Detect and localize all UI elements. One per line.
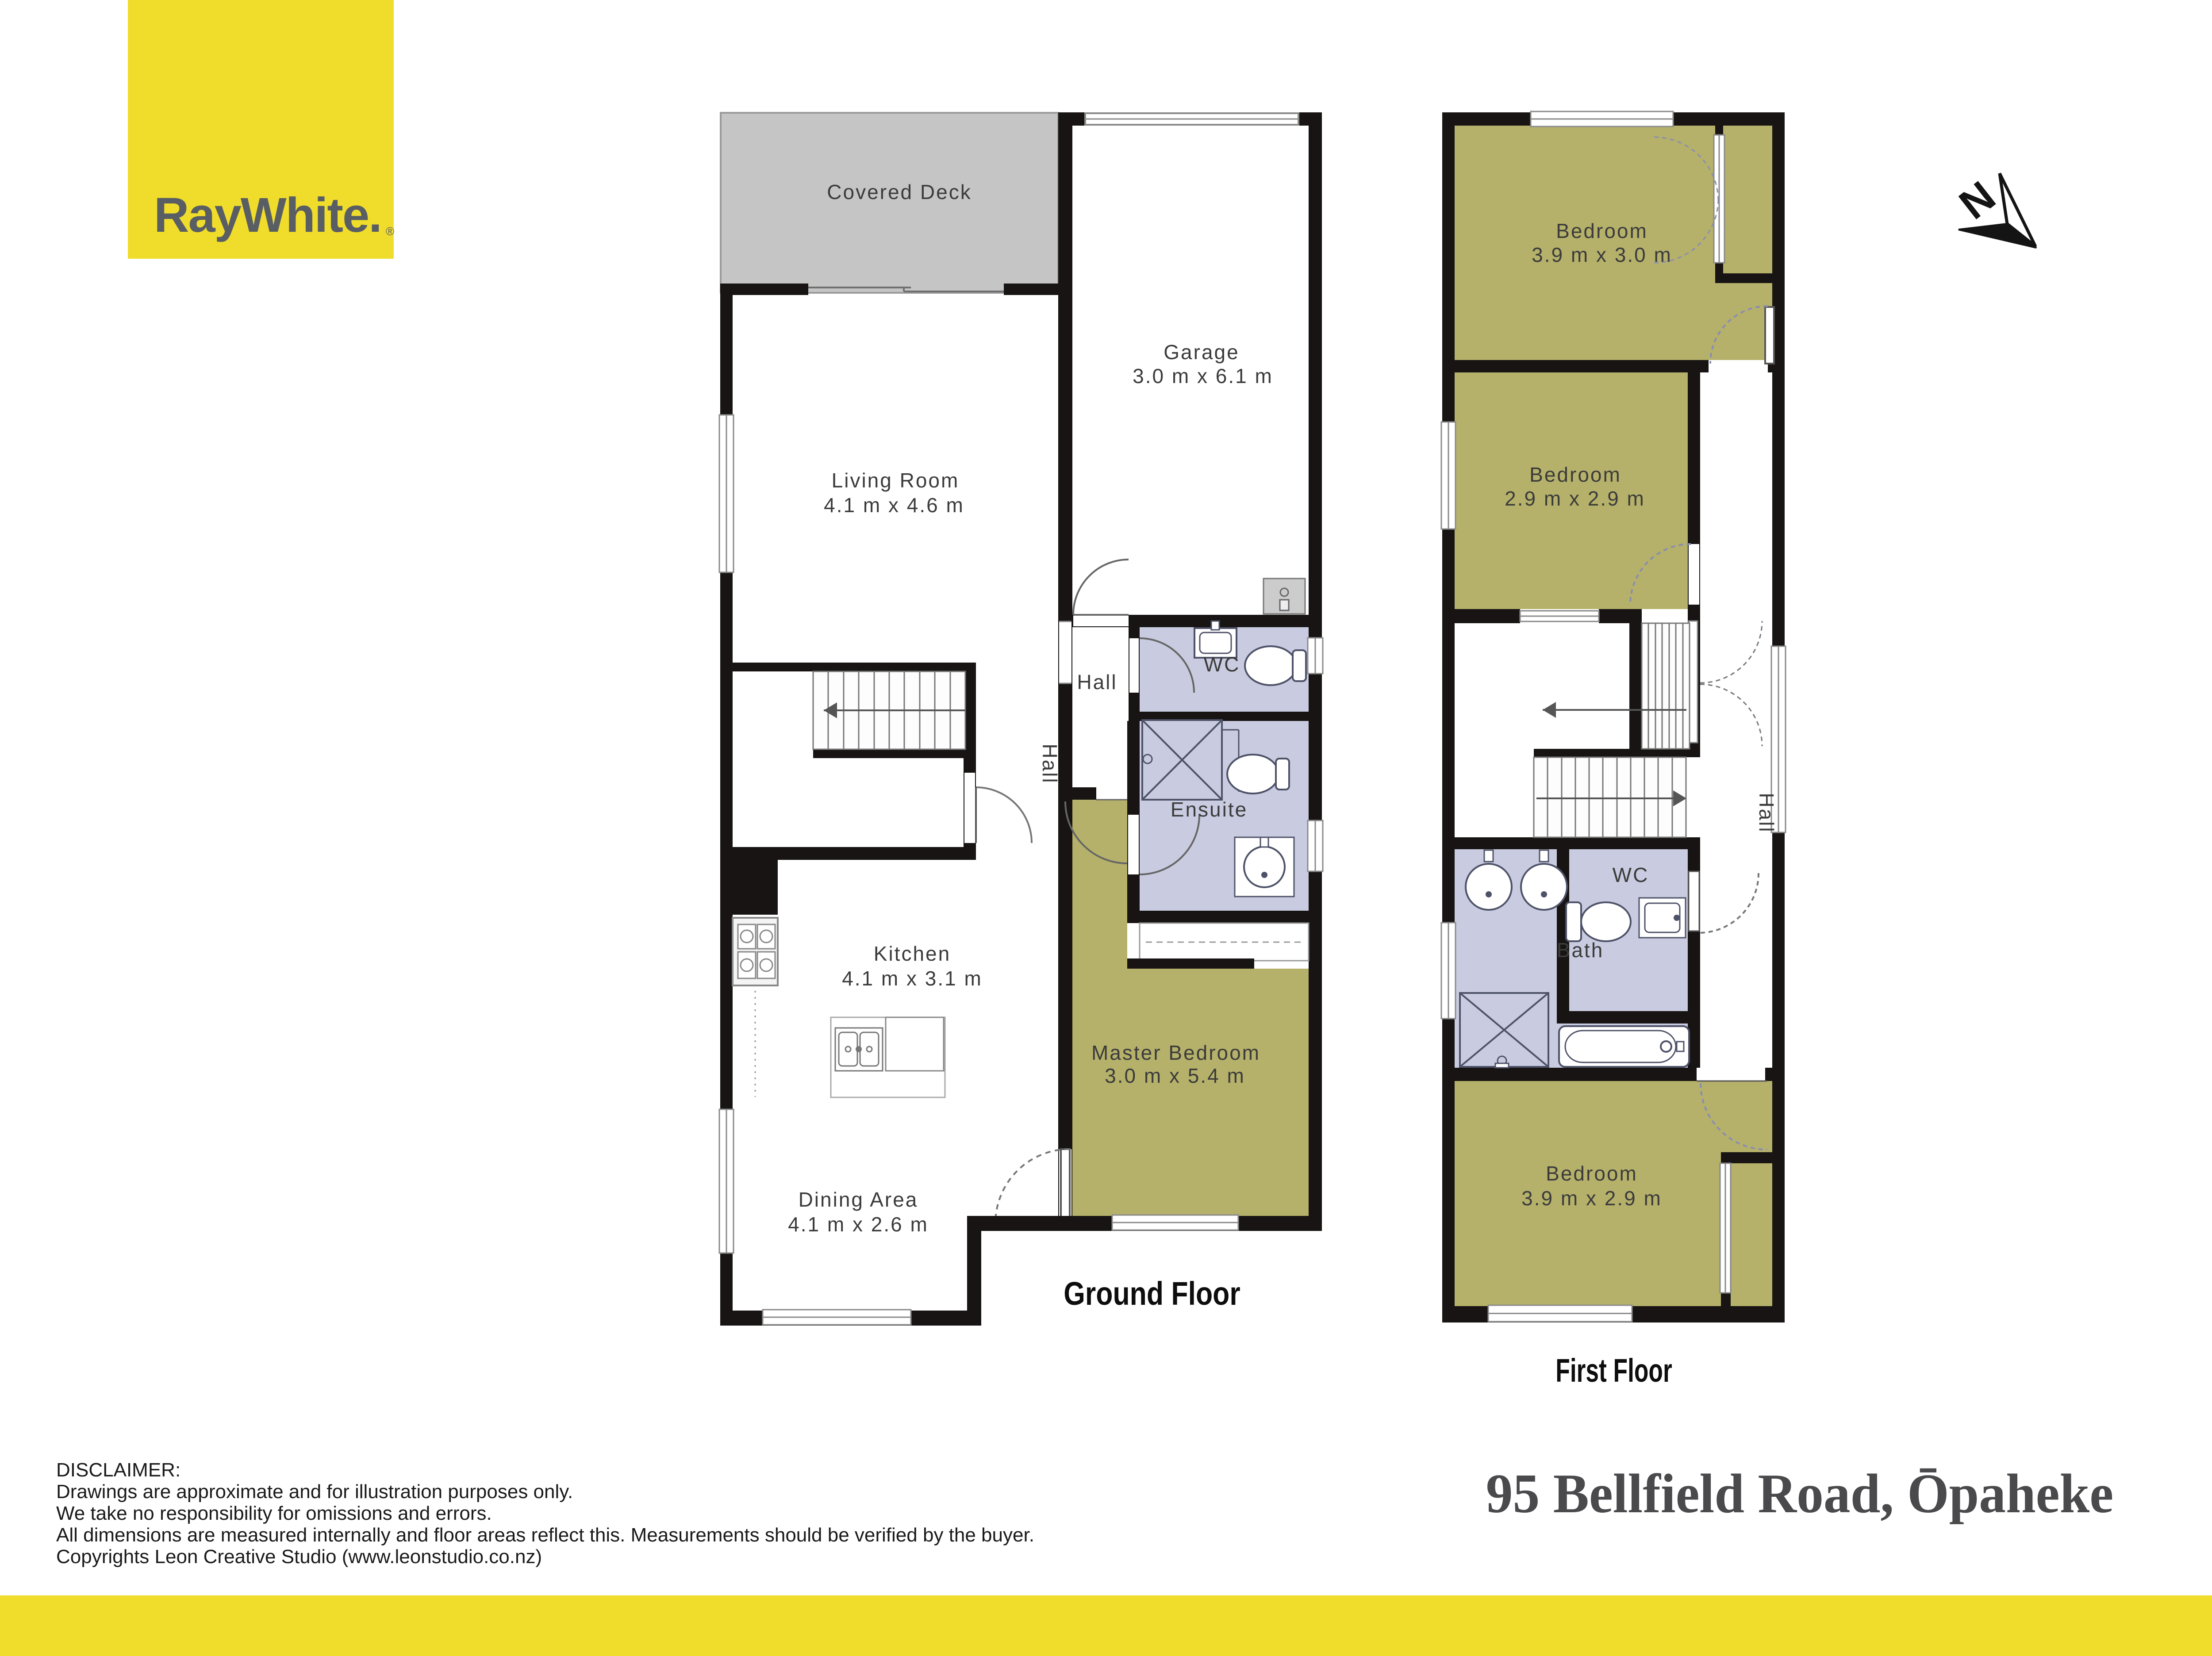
svg-text:3.9 m x 3.0 m: 3.9 m x 3.0 m — [1532, 243, 1672, 266]
svg-text:4.1 m x 3.1 m: 4.1 m x 3.1 m — [842, 967, 983, 990]
svg-text:Covered Deck: Covered Deck — [827, 180, 972, 203]
svg-text:2.9 m x 2.9 m: 2.9 m x 2.9 m — [1505, 487, 1645, 510]
svg-text:Master Bedroom: Master Bedroom — [1091, 1041, 1260, 1064]
svg-text:95 Bellfield Road, Ōpaheke: 95 Bellfield Road, Ōpaheke — [1486, 1463, 2113, 1524]
svg-text:Living Room: Living Room — [832, 469, 960, 492]
svg-text:Copyrights Leon Creative Studi: Copyrights Leon Creative Studio (www.leo… — [56, 1546, 542, 1568]
svg-text:Bedroom: Bedroom — [1529, 463, 1621, 486]
svg-text:3.9 m x 2.9 m: 3.9 m x 2.9 m — [1521, 1187, 1662, 1210]
svg-text:Ground Floor: Ground Floor — [1064, 1275, 1240, 1312]
svg-text:3.0 m x 6.1 m: 3.0 m x 6.1 m — [1133, 364, 1273, 387]
svg-text:RayWhite.: RayWhite. — [154, 188, 381, 242]
svg-text:Bedroom: Bedroom — [1546, 1162, 1638, 1185]
svg-text:Kitchen: Kitchen — [874, 942, 951, 965]
svg-text:Garage: Garage — [1164, 341, 1239, 364]
svg-text:Ensuite: Ensuite — [1171, 798, 1248, 821]
svg-text:WC: WC — [1204, 653, 1240, 676]
svg-text:Bedroom: Bedroom — [1556, 219, 1648, 242]
svg-text:All dimensions are measured in: All dimensions are measured internally a… — [56, 1524, 1034, 1546]
svg-text:We take no responsibility for: We take no responsibility for omissions … — [56, 1503, 492, 1524]
svg-text:WC: WC — [1613, 863, 1649, 886]
svg-text:Hall: Hall — [1038, 744, 1061, 784]
svg-text:DISCLAIMER:: DISCLAIMER: — [56, 1459, 180, 1481]
svg-text:Bath: Bath — [1557, 939, 1604, 962]
svg-text:4.1 m x 4.6 m: 4.1 m x 4.6 m — [824, 494, 964, 517]
svg-text:4.1 m x 2.6 m: 4.1 m x 2.6 m — [788, 1213, 929, 1236]
svg-text:®: ® — [386, 225, 394, 238]
svg-text:3.0 m x 5.4 m: 3.0 m x 5.4 m — [1105, 1064, 1245, 1087]
svg-text:First Floor: First Floor — [1555, 1352, 1672, 1389]
svg-text:Hall: Hall — [1077, 671, 1117, 694]
svg-text:Dining Area: Dining Area — [799, 1188, 918, 1211]
svg-text:Drawings are approximate and f: Drawings are approximate and for illustr… — [56, 1481, 573, 1503]
svg-text:Hall: Hall — [1755, 793, 1778, 833]
